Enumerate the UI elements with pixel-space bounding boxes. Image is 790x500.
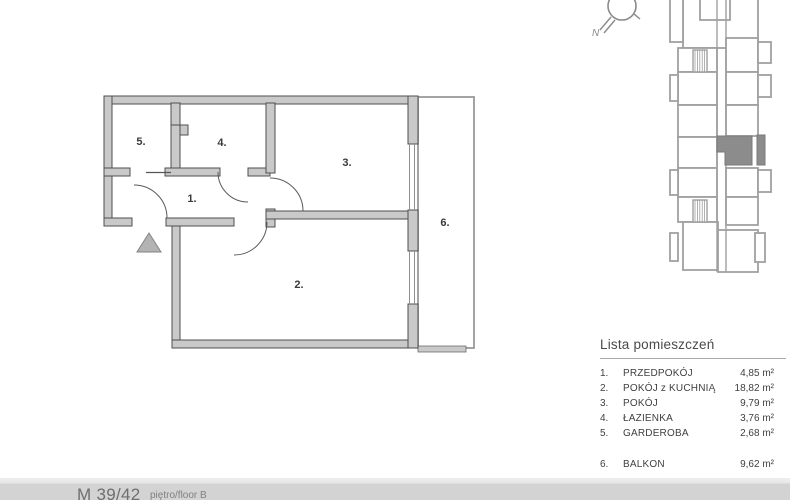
row-number: 6. <box>600 457 623 472</box>
row-number: 4. <box>600 411 623 426</box>
footer-floor-info: piętro/floor B <box>150 490 207 500</box>
room-label-6: 6. <box>440 217 449 229</box>
row-room-area: 4,85 m² <box>740 366 786 381</box>
compass-north-label: N <box>592 28 600 39</box>
footer-bar: M 39/42 piętro/floor B <box>0 478 790 500</box>
room-label-5: 5. <box>136 136 145 148</box>
stairwell-1 <box>693 50 707 72</box>
compass-tick-east <box>634 14 640 19</box>
room-list-row-6-balcony: 6. BALKON 9,62 m² <box>600 457 786 472</box>
room3-door-arc <box>270 178 303 211</box>
entrance-arrow <box>137 233 161 252</box>
room-list-row-5: 5. GARDEROBA 2,68 m² <box>600 426 786 441</box>
building-key-plan <box>660 0 790 278</box>
row-room-name: PRZEDPOKÓJ <box>623 366 740 381</box>
room-label-4: 4. <box>217 137 226 149</box>
row-number: 2. <box>600 381 623 396</box>
room-list-row-1: 1. PRZEDPOKÓJ 4,85 m² <box>600 366 786 381</box>
compass-circle <box>608 0 636 20</box>
room-list-rows: 1. PRZEDPOKÓJ 4,85 m² 2. POKÓJ z KUCHNIĄ… <box>600 366 786 472</box>
room-list-panel: Lista pomieszczeń 1. PRZEDPOKÓJ 4,85 m² … <box>600 337 786 472</box>
room-label-2: 2. <box>294 279 303 291</box>
row-room-name: BALKON <box>623 457 740 472</box>
row-room-name: POKÓJ <box>623 396 740 411</box>
room2-door-arc <box>234 222 267 255</box>
footer-unit-number: M 39/42 <box>77 485 141 500</box>
row-number: 3. <box>600 396 623 411</box>
key-plan-highlighted-unit <box>717 135 765 165</box>
stairwell-2 <box>693 200 707 222</box>
room-label-3: 3. <box>342 157 351 169</box>
room-list-row-2: 2. POKÓJ z KUCHNIĄ 18,82 m² <box>600 381 786 396</box>
room-list-row-4: 4. ŁAZIENKA 3,76 m² <box>600 411 786 426</box>
row-room-area: 3,76 m² <box>740 411 786 426</box>
walls <box>104 96 418 348</box>
row-room-area: 18,82 m² <box>735 381 786 396</box>
room-list-row-3: 3. POKÓJ 9,79 m² <box>600 396 786 411</box>
row-number: 5. <box>600 426 623 441</box>
north-compass: N <box>590 0 650 45</box>
bathroom-door-arc <box>218 172 248 202</box>
row-number: 1. <box>600 366 623 381</box>
row-room-area: 9,79 m² <box>740 396 786 411</box>
row-room-name: GARDEROBA <box>623 426 740 441</box>
room-label-1: 1. <box>187 193 196 205</box>
row-room-name: ŁAZIENKA <box>623 411 740 426</box>
row-room-area: 2,68 m² <box>740 426 786 441</box>
floor-plan-sheet: 1. 2. 3. 4. 5. 6. N <box>0 0 790 500</box>
row-room-name: POKÓJ z KUCHNIĄ <box>623 381 735 396</box>
row-room-area: 9,62 m² <box>740 457 786 472</box>
entry-door-arc <box>134 185 167 218</box>
room-list-title: Lista pomieszczeń <box>600 337 786 359</box>
compass-needle <box>600 17 615 33</box>
apartment-floor-plan: 1. 2. 3. 4. 5. 6. <box>95 85 495 375</box>
